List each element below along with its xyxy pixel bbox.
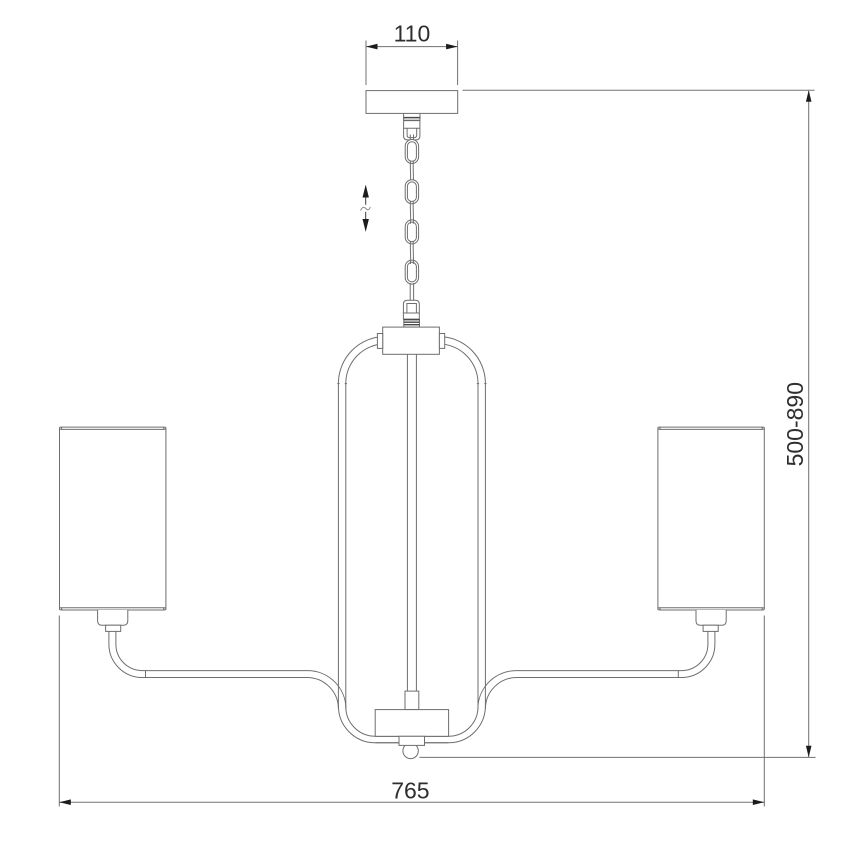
svg-text:765: 765 — [391, 777, 429, 803]
svg-text:500-890: 500-890 — [782, 382, 808, 466]
svg-text:110: 110 — [394, 21, 431, 47]
